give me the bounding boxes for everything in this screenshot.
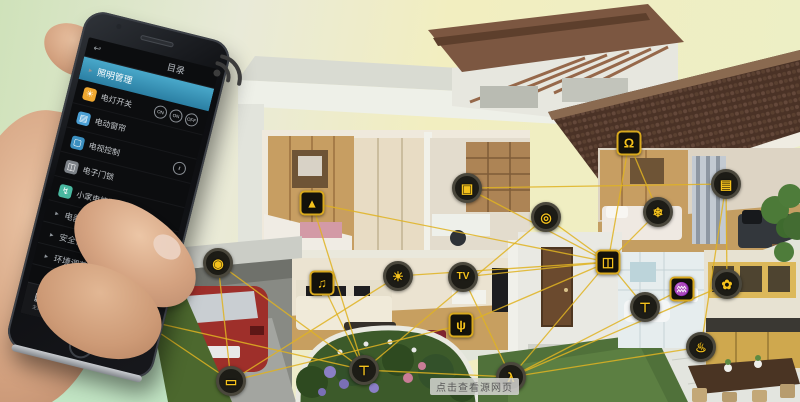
water-heater-icon: ♒ bbox=[670, 277, 695, 302]
menu-item-icon: ▢ bbox=[70, 135, 86, 151]
selected-label: 照明管理 bbox=[96, 65, 134, 86]
control-button[interactable]: ON bbox=[153, 104, 169, 120]
bathroom-faucet-icon: ⊤ bbox=[630, 292, 660, 322]
safe-box-icon: ▣ bbox=[452, 173, 482, 203]
menu-item-label: 电子门锁 bbox=[81, 164, 115, 182]
tv-icon: TV bbox=[448, 262, 478, 292]
chevron-icon: ▸ bbox=[88, 66, 93, 75]
phone-speaker bbox=[140, 35, 174, 48]
control-button[interactable]: ON bbox=[168, 108, 184, 124]
smart-home-poster: ◉↯▭▴▣♫☀TVψ⊤λ◎◫Ω❄▤⊤♒✿♨ 点击查看源网页 ↩ 目录 ▸ 照明管… bbox=[0, 0, 800, 402]
menu-item-label: 电灯开关 bbox=[100, 91, 134, 109]
table-lamp-icon: ▴ bbox=[300, 191, 325, 216]
control-button[interactable]: OFF bbox=[184, 112, 200, 128]
cctv-camera-icon: ◉ bbox=[203, 248, 233, 278]
chevron-icon: ▸ bbox=[44, 252, 49, 261]
water-fountain-icon: ⊤ bbox=[349, 355, 379, 385]
garage-door-icon: ▭ bbox=[216, 366, 246, 396]
phone-camera bbox=[116, 24, 122, 30]
audio-player-icon: ♫ bbox=[310, 271, 335, 296]
chevron-icon: ▸ bbox=[55, 209, 60, 218]
wifi-router-icon: ψ bbox=[449, 313, 474, 338]
source-watermark-link[interactable]: 点击查看源网页 bbox=[430, 378, 519, 395]
curtain-icon: ▤ bbox=[711, 169, 741, 199]
menu-item-icon: ↯ bbox=[58, 183, 74, 199]
back-icon[interactable]: ↩ bbox=[92, 43, 102, 55]
stereo-icon: ◎ bbox=[531, 202, 561, 232]
page-title: 目录 bbox=[166, 60, 187, 77]
menu-item-icon: ◫ bbox=[64, 159, 80, 175]
stove-icon: ♨ bbox=[686, 332, 716, 362]
menu-item-icon: ▤ bbox=[76, 110, 92, 126]
menu-item-icon: ☀ bbox=[82, 86, 98, 102]
exhaust-fan-icon: ✿ bbox=[712, 269, 742, 299]
door-lock-icon: ◫ bbox=[596, 250, 621, 275]
menu-item-label: 电视控制 bbox=[87, 140, 121, 158]
control-button[interactable]: ‖ bbox=[172, 160, 188, 176]
doorbell-icon: Ω bbox=[617, 131, 642, 156]
ceiling-light-icon: ☀ bbox=[383, 261, 413, 291]
chevron-icon: ▸ bbox=[49, 230, 54, 239]
air-conditioner-icon: ❄ bbox=[643, 197, 673, 227]
menu-item-label: 电动窗帘 bbox=[94, 116, 128, 134]
